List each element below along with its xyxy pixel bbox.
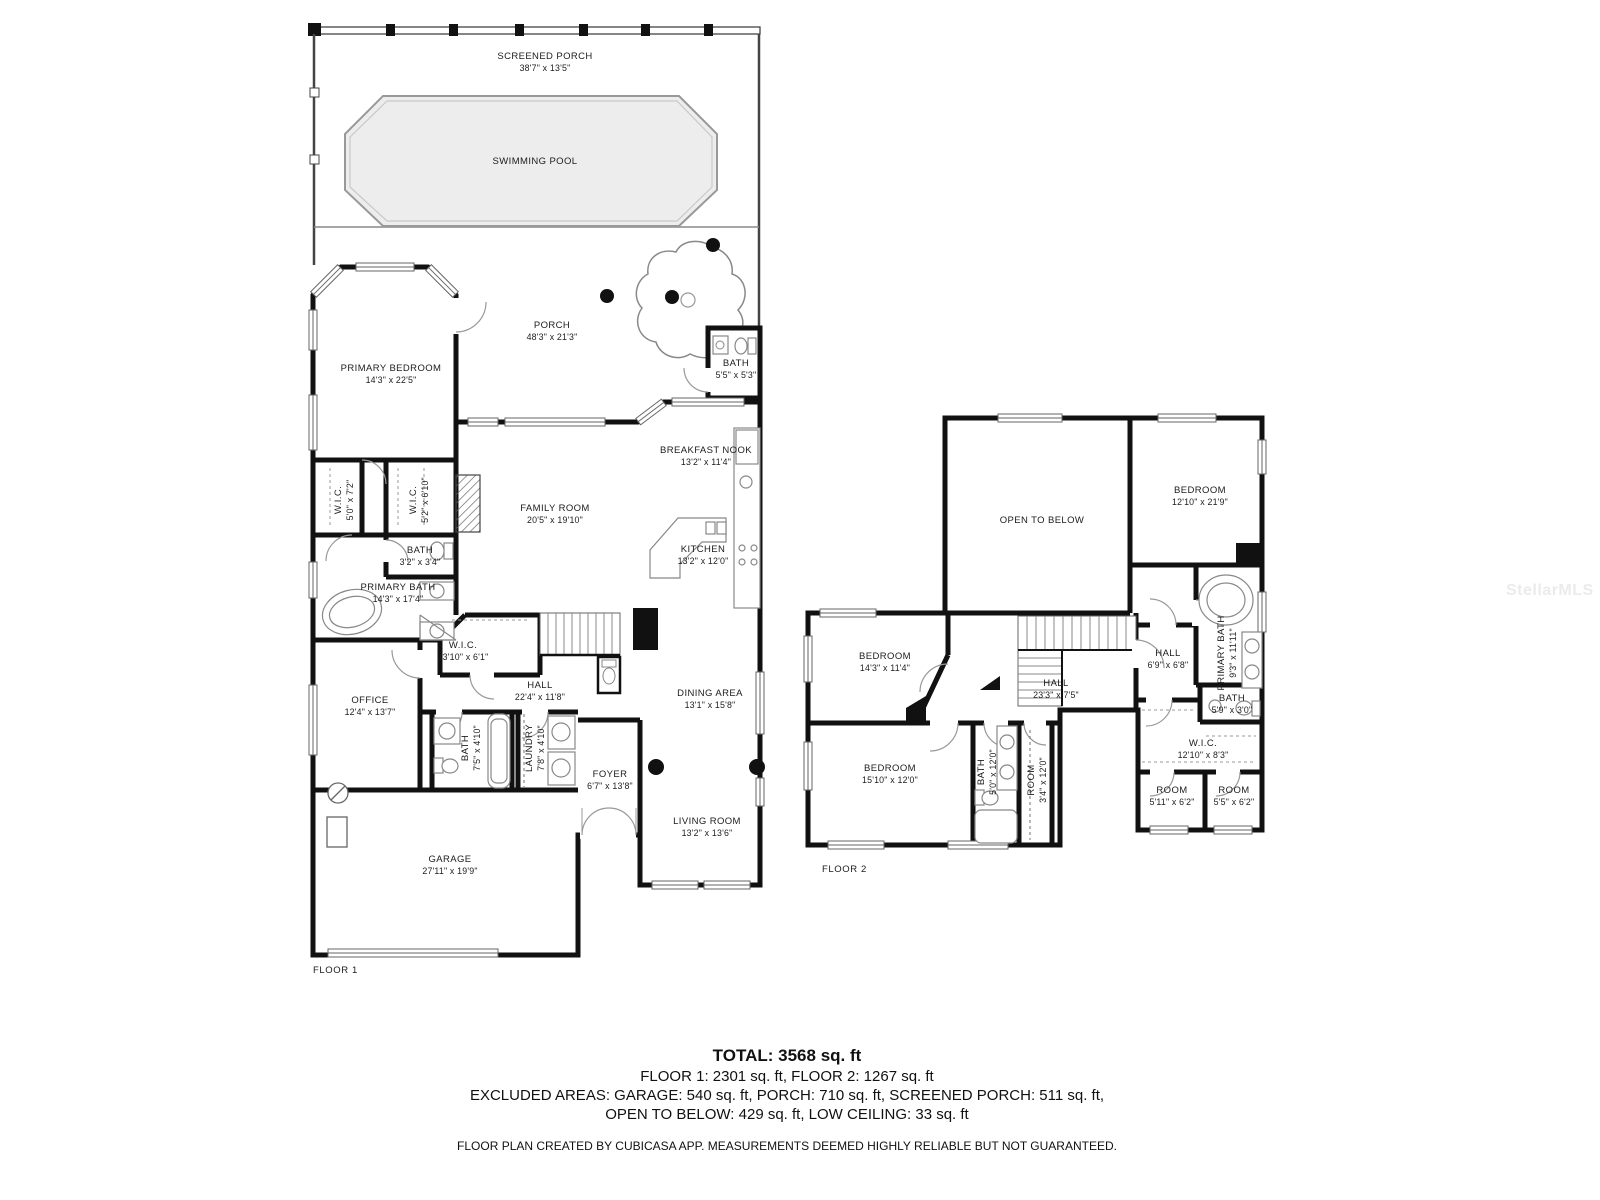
floor2-tag: FLOOR 2 [822,864,867,875]
room-label-kitchen: KITCHEN 13'2" x 12'0" [678,544,729,568]
room-label-bath-2: BATH 5'9" x 3'0" [1212,693,1253,717]
disclaimer-text: FLOOR PLAN CREATED BY CUBICASA APP. MEAS… [457,1139,1117,1153]
room-label-living-room: LIVING ROOM 13'2" x 13'6" [673,816,741,840]
room-label-primary-bedroom: PRIMARY BEDROOM 14'3" x 22'5" [341,363,442,387]
stairs-floor1 [540,613,620,655]
room-label-dining-area: DINING AREA 13'1" x 15'8" [677,688,743,712]
floor-plan-canvas [0,0,1600,1200]
room-label-garage: GARAGE 27'11" x 19'9" [422,854,477,878]
garage-door [328,949,498,957]
understair-toilet [598,657,620,693]
room-label-bath-f2: BATH 5'0" x 12'0" [976,749,1000,795]
room-label-room-small: ROOM 3'4" x 12'0" [1026,757,1050,803]
room-label-porch: PORCH 48'3" x 21'3" [527,320,578,344]
room-label-pool-bath: BATH 5'5" x 5'3" [716,358,757,382]
excluded-areas-text-2: OPEN TO BELOW: 429 sq. ft, LOW CEILING: … [457,1106,1117,1123]
room-label-family-room: FAMILY ROOM 20'5" x 19'10" [520,503,590,527]
room-label-wic-1: W.I.C. 5'0" x 7'2" [333,480,357,521]
room-label-hall-2: HALL 23'3" x 7'5" [1033,678,1079,702]
room-label-swimming-pool: SWIMMING POOL [493,156,578,168]
room-label-toilet-bath: BATH 3'2" x 3'4" [400,545,441,569]
room-label-hall-1: HALL 22'4" x 11'8" [515,680,565,704]
total-area-text: TOTAL: 3568 sq. ft [457,1046,1117,1066]
room-label-bedroom-1: BEDROOM 14'3" x 11'4" [859,651,911,675]
room-label-wic-2: W.I.C. 5'2" x 6'10" [408,477,432,523]
room-label-wic-3: W.I.C. 13'10" x 6'1" [438,640,489,664]
room-label-room-2: ROOM 5'5" x 6'2" [1214,785,1255,809]
floor1-tag: FLOOR 1 [313,965,358,976]
room-label-primary-bath: PRIMARY BATH 14'3" x 17'4" [360,582,435,606]
floor-areas-text: FLOOR 1: 2301 sq. ft, FLOOR 2: 1267 sq. … [457,1068,1117,1085]
excluded-areas-text-1: EXCLUDED AREAS: GARAGE: 540 sq. ft, PORC… [457,1087,1117,1104]
room-label-room-1: ROOM 5'11" x 6'2" [1149,785,1194,809]
fireplace [456,475,480,532]
area-summary: TOTAL: 3568 sq. ft FLOOR 1: 2301 sq. ft,… [457,1046,1117,1153]
room-label-wic-4: W.I.C. 12'10" x 8'3" [1178,738,1229,762]
room-label-office: OFFICE 12'4" x 13'7" [345,695,396,719]
room-label-hall-bath: BATH 7'5" x 4'10" [460,725,484,771]
room-label-hall-3: HALL 6'9" x 6'8" [1148,648,1189,672]
room-label-laundry: LAUNDRY 7'8" x 4'10" [524,724,548,772]
room-label-primary-bath-2: PRIMARY BATH 9'3" x 11'11" [1216,615,1240,690]
stellar-mls-watermark: StellarMLS [1506,582,1594,600]
room-label-screened-porch: SCREENED PORCH 38'7" x 13'5" [497,51,592,75]
room-label-bedroom-3: BEDROOM 12'10" x 21'9" [1172,485,1228,509]
floor-plan-page: SCREENED PORCH 38'7" x 13'5" SWIMMING PO… [0,0,1600,1200]
room-label-foyer: FOYER 6'7" x 13'8" [587,769,633,793]
room-label-open-to-below: OPEN TO BELOW [1000,515,1085,527]
kitchen-wall-block [633,608,658,650]
room-label-breakfast-nook: BREAKFAST NOOK 13'2" x 11'4" [660,445,752,469]
room-label-bedroom-2: BEDROOM 15'10" x 12'0" [862,763,918,787]
